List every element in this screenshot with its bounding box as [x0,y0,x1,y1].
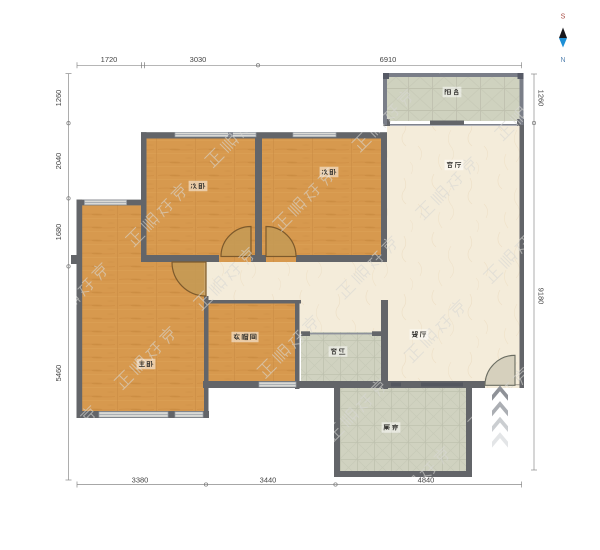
svg-text:3440: 3440 [260,476,277,485]
svg-text:3380: 3380 [132,476,149,485]
svg-text:2040: 2040 [54,153,63,170]
svg-text:1680: 1680 [54,224,63,241]
svg-text:1260: 1260 [537,90,546,107]
svg-text:S: S [561,14,566,21]
svg-text:9180: 9180 [537,288,546,305]
svg-text:4840: 4840 [418,476,435,485]
svg-text:6910: 6910 [380,55,397,64]
svg-text:1260: 1260 [54,90,63,107]
svg-text:1720: 1720 [101,55,118,64]
svg-text:N: N [560,57,565,64]
svg-text:3030: 3030 [190,55,207,64]
svg-text:5460: 5460 [54,365,63,382]
